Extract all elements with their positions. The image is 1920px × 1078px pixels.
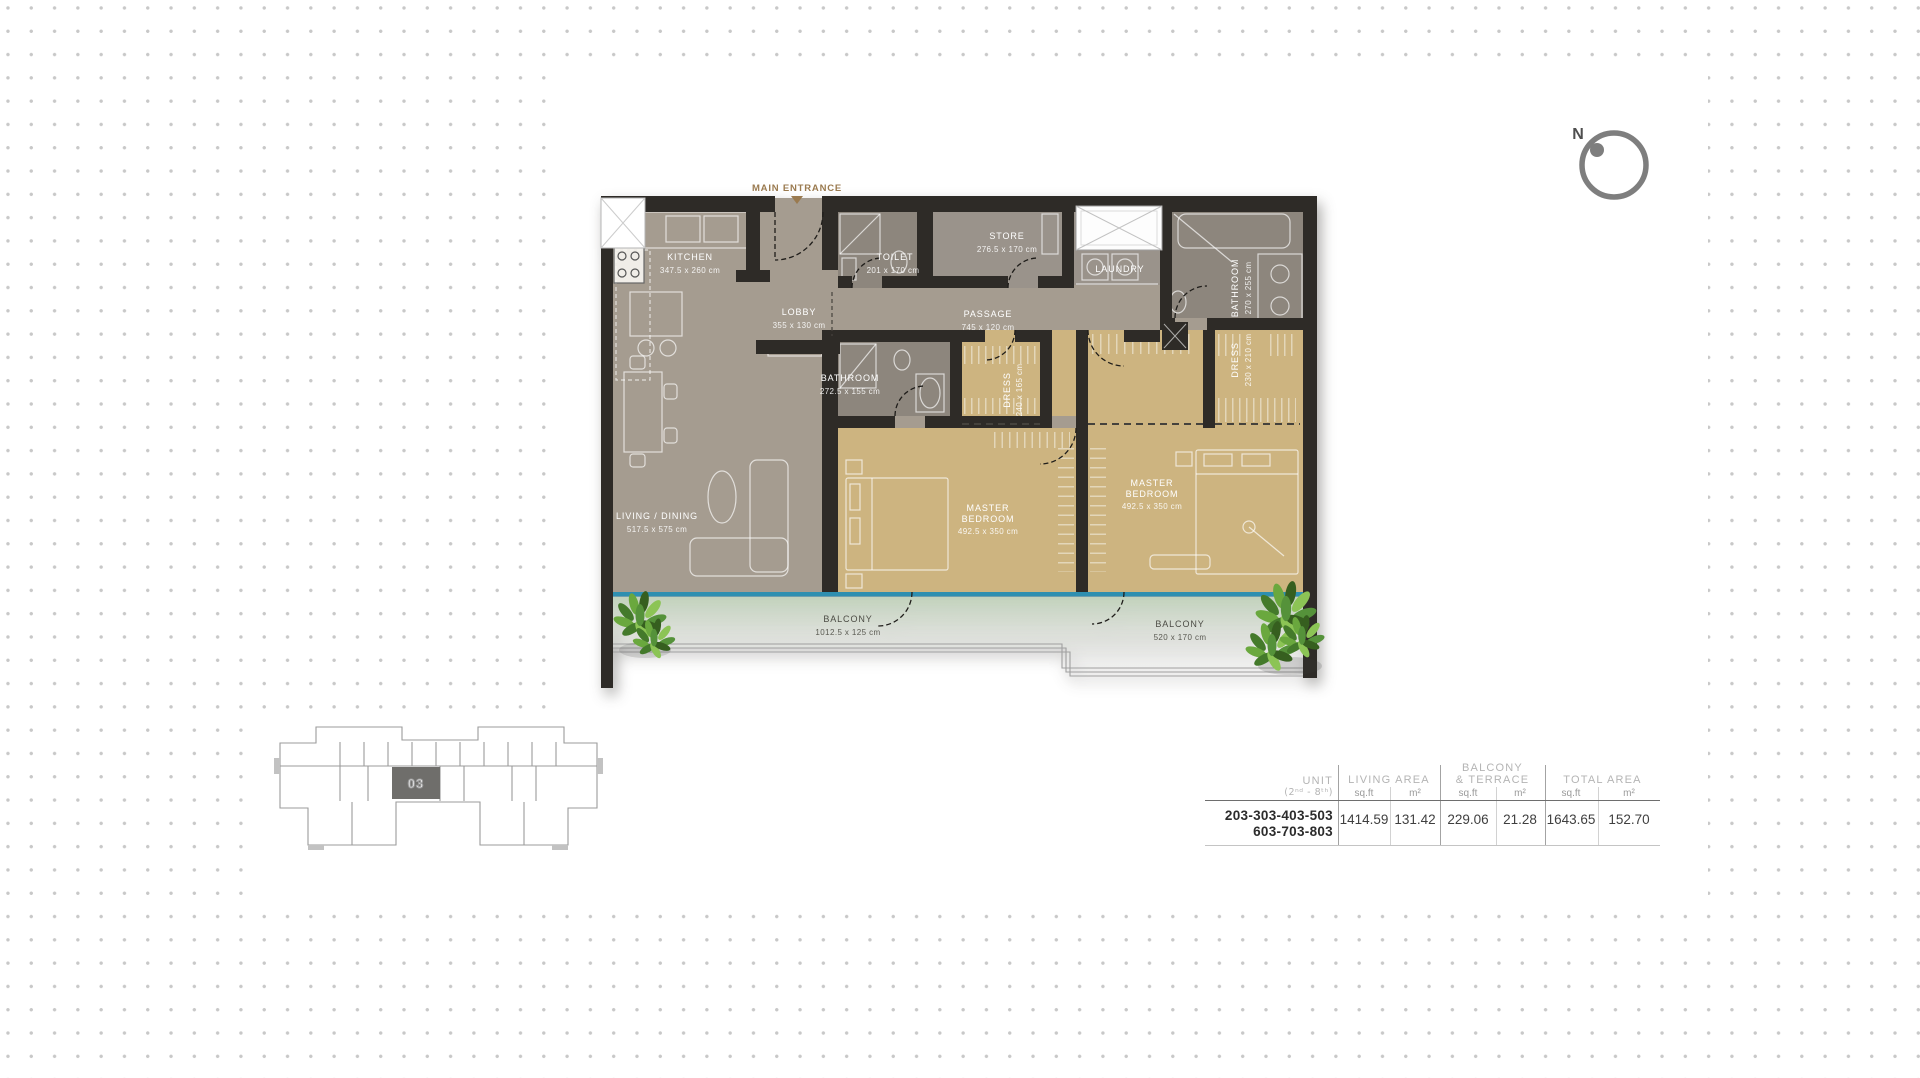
living-dining-label: LIVING / DINING	[616, 511, 698, 521]
lobby-label: LOBBY	[782, 307, 817, 317]
m2-header: m²	[1604, 788, 1654, 799]
key-plan: 03	[274, 727, 603, 850]
total-area-header-line1: TOTAL AREA	[1563, 775, 1641, 787]
area-table: UNIT (2ⁿᵈ - 8ᵗʰ) LIVING AREA BALCONY & T…	[1205, 763, 1660, 849]
total-area-header: TOTAL AREA	[1545, 763, 1660, 786]
passage-label: PASSAGE	[964, 309, 1013, 319]
kitchen-label: KITCHEN	[667, 252, 713, 262]
dress-right-dims: 230 x 210 cm	[1244, 334, 1253, 387]
passage-dims: 745 x 120 cm	[962, 323, 1015, 332]
dress-mid-label: DRESS	[1002, 372, 1012, 408]
balcony-left-dims: 1012.5 x 125 cm	[815, 628, 880, 637]
main-entrance-label: MAIN ENTRANCE	[752, 183, 842, 194]
master-bedroom-right-label2: BEDROOM	[1126, 489, 1179, 499]
page: MAIN ENTRANCE KITCHEN 347.5 x 260 cm TOI…	[0, 0, 1920, 1078]
master-bedroom-left-dims: 492.5 x 350 cm	[958, 527, 1018, 536]
unit-numbers-line2: 603-703-803	[1205, 824, 1333, 840]
store-dims: 276.5 x 170 cm	[977, 245, 1037, 254]
sqft-header: sq.ft	[1546, 788, 1596, 799]
dress-mid-dims: 240 x 165 cm	[1015, 364, 1024, 417]
compass-north-dot-icon	[1590, 143, 1604, 157]
balcony-terrace-header-line1: BALCONY	[1462, 763, 1523, 775]
m2-header: m²	[1495, 788, 1545, 799]
bathroom-right-dims: 270 x 255 cm	[1244, 262, 1253, 315]
unit-numbers-line1: 203-303-403-503	[1205, 808, 1333, 824]
compass-ring-icon	[1582, 133, 1646, 197]
lobby-dims: 355 x 130 cm	[773, 321, 826, 330]
kitchen-dims: 347.5 x 260 cm	[660, 266, 720, 275]
key-plan-unit-label: 03	[408, 776, 424, 791]
balcony-glazing-line	[613, 592, 1303, 597]
compass: N	[1572, 126, 1646, 197]
floor-plan-canvas: MAIN ENTRANCE KITCHEN 347.5 x 260 cm TOI…	[0, 0, 1920, 1078]
unit-floors-subheader: (2ⁿᵈ - 8ᵗʰ)	[1205, 787, 1333, 798]
toilet-label: TOILET	[877, 252, 914, 262]
bathroom-mid-dims: 272.5 x 155 cm	[820, 387, 880, 396]
balcony-right-label: BALCONY	[1155, 619, 1204, 629]
unit-numbers: 203-303-403-503 603-703-803	[1205, 808, 1333, 839]
living-dining-dims: 517.5 x 575 cm	[627, 525, 687, 534]
bathroom-mid-label: BATHROOM	[821, 373, 880, 383]
toilet-dims: 201 x 170 cm	[867, 266, 920, 275]
balcony-terrace-header-line2: & TERRACE	[1456, 775, 1530, 787]
balcony-right-dims: 520 x 170 cm	[1154, 633, 1207, 642]
balcony-left-label: BALCONY	[823, 614, 872, 624]
master-bedroom-left-label1: MASTER	[967, 503, 1010, 513]
compass-north-label: N	[1572, 126, 1584, 143]
table-bottom-rule	[1205, 845, 1660, 846]
sqft-header: sq.ft	[1339, 788, 1389, 799]
master-bedroom-right-label1: MASTER	[1131, 478, 1174, 488]
laundry-label: LAUNDRY	[1095, 264, 1144, 274]
balcony-terrace-header: BALCONY & TERRACE	[1440, 763, 1545, 786]
master-bedroom-left-label2: BEDROOM	[962, 514, 1015, 524]
dress-right-label: DRESS	[1230, 342, 1240, 378]
table-header-rule	[1205, 800, 1660, 801]
m2-header: m²	[1390, 788, 1440, 799]
bathroom-right-label: BATHROOM	[1230, 259, 1240, 318]
living-area-header: LIVING AREA	[1338, 763, 1440, 786]
sqft-header: sq.ft	[1443, 788, 1493, 799]
living-area-header-line1: LIVING AREA	[1348, 775, 1430, 787]
store-label: STORE	[989, 231, 1024, 241]
total-m2-value: 152.70	[1594, 812, 1664, 827]
master-bedroom-right-dims: 492.5 x 350 cm	[1122, 502, 1182, 511]
unit-column-header: UNIT	[1205, 775, 1333, 787]
